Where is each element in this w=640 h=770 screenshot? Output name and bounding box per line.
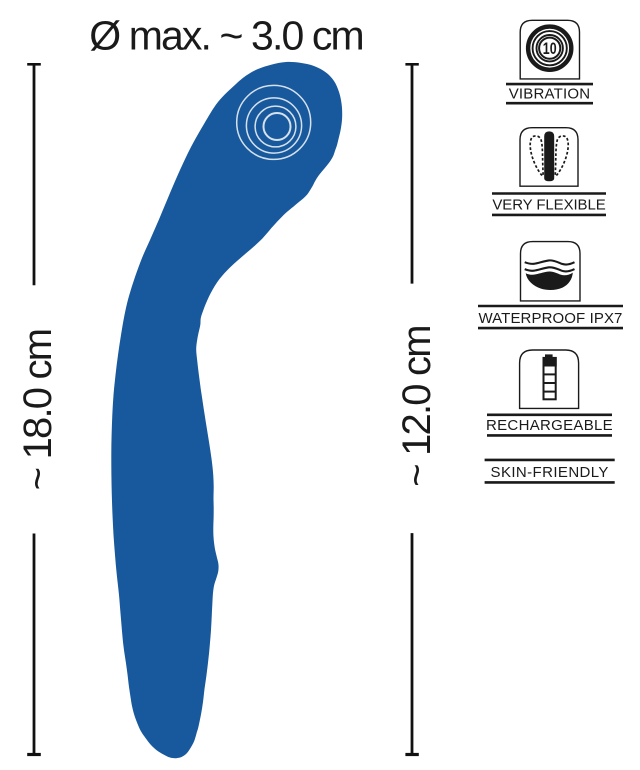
svg-text:VIBRATION: VIBRATION <box>509 85 591 102</box>
svg-text:10: 10 <box>543 40 557 58</box>
svg-text:~ 12.0 cm: ~ 12.0 cm <box>395 326 439 487</box>
svg-text:WATERPROOF IPX7: WATERPROOF IPX7 <box>478 310 622 327</box>
svg-text:VERY FLEXIBLE: VERY FLEXIBLE <box>492 196 605 213</box>
svg-text:RECHARGEABLE: RECHARGEABLE <box>486 417 613 434</box>
svg-text:SKIN-FRIENDLY: SKIN-FRIENDLY <box>491 464 609 481</box>
svg-text:~ 18.0 cm: ~ 18.0 cm <box>16 330 60 491</box>
svg-text:Ø max. ~ 3.0 cm: Ø max. ~ 3.0 cm <box>89 13 362 59</box>
